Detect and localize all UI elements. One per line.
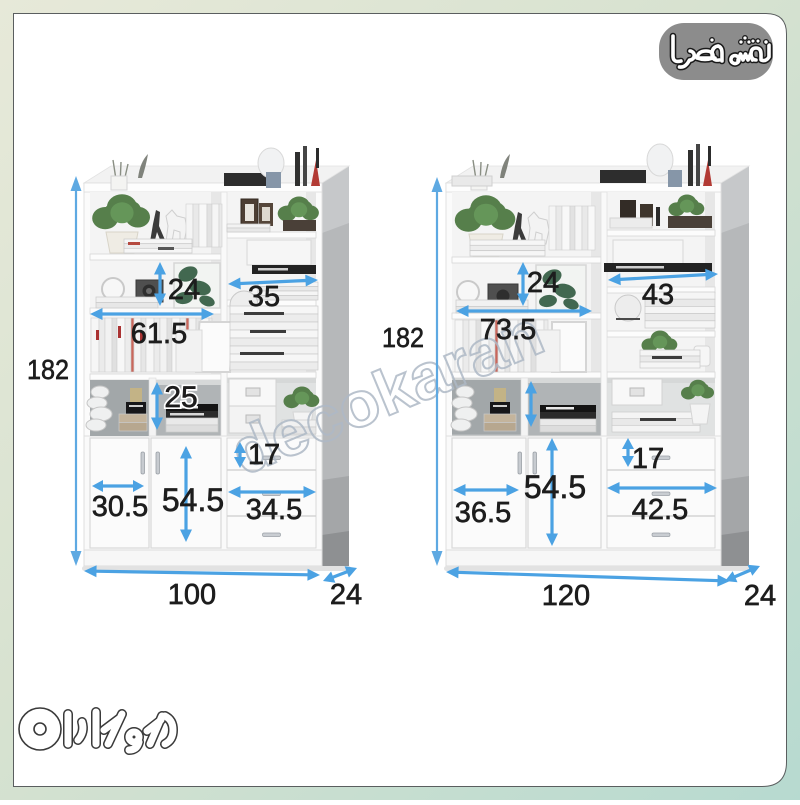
svg-text:100: 100: [168, 579, 216, 611]
svg-text:24: 24: [527, 267, 559, 299]
svg-text:17: 17: [248, 439, 280, 471]
svg-text:54.5: 54.5: [162, 482, 224, 518]
svg-text:24: 24: [168, 274, 200, 306]
svg-text:36.5: 36.5: [455, 497, 511, 529]
svg-text:25: 25: [164, 381, 197, 414]
svg-text:35: 35: [248, 281, 280, 313]
svg-text:42.5: 42.5: [632, 494, 688, 526]
svg-text:54.5: 54.5: [524, 469, 586, 505]
svg-text:182: 182: [382, 322, 424, 353]
svg-text:73.5: 73.5: [480, 314, 536, 346]
svg-text:182: 182: [27, 354, 69, 385]
svg-text:43: 43: [642, 279, 674, 311]
svg-text:24: 24: [330, 579, 362, 611]
svg-text:17: 17: [632, 443, 664, 475]
svg-text:61.5: 61.5: [131, 318, 187, 350]
svg-text:34.5: 34.5: [246, 494, 302, 526]
svg-text:120: 120: [542, 580, 590, 612]
svg-text:30.5: 30.5: [92, 491, 148, 523]
svg-text:24: 24: [744, 580, 776, 612]
